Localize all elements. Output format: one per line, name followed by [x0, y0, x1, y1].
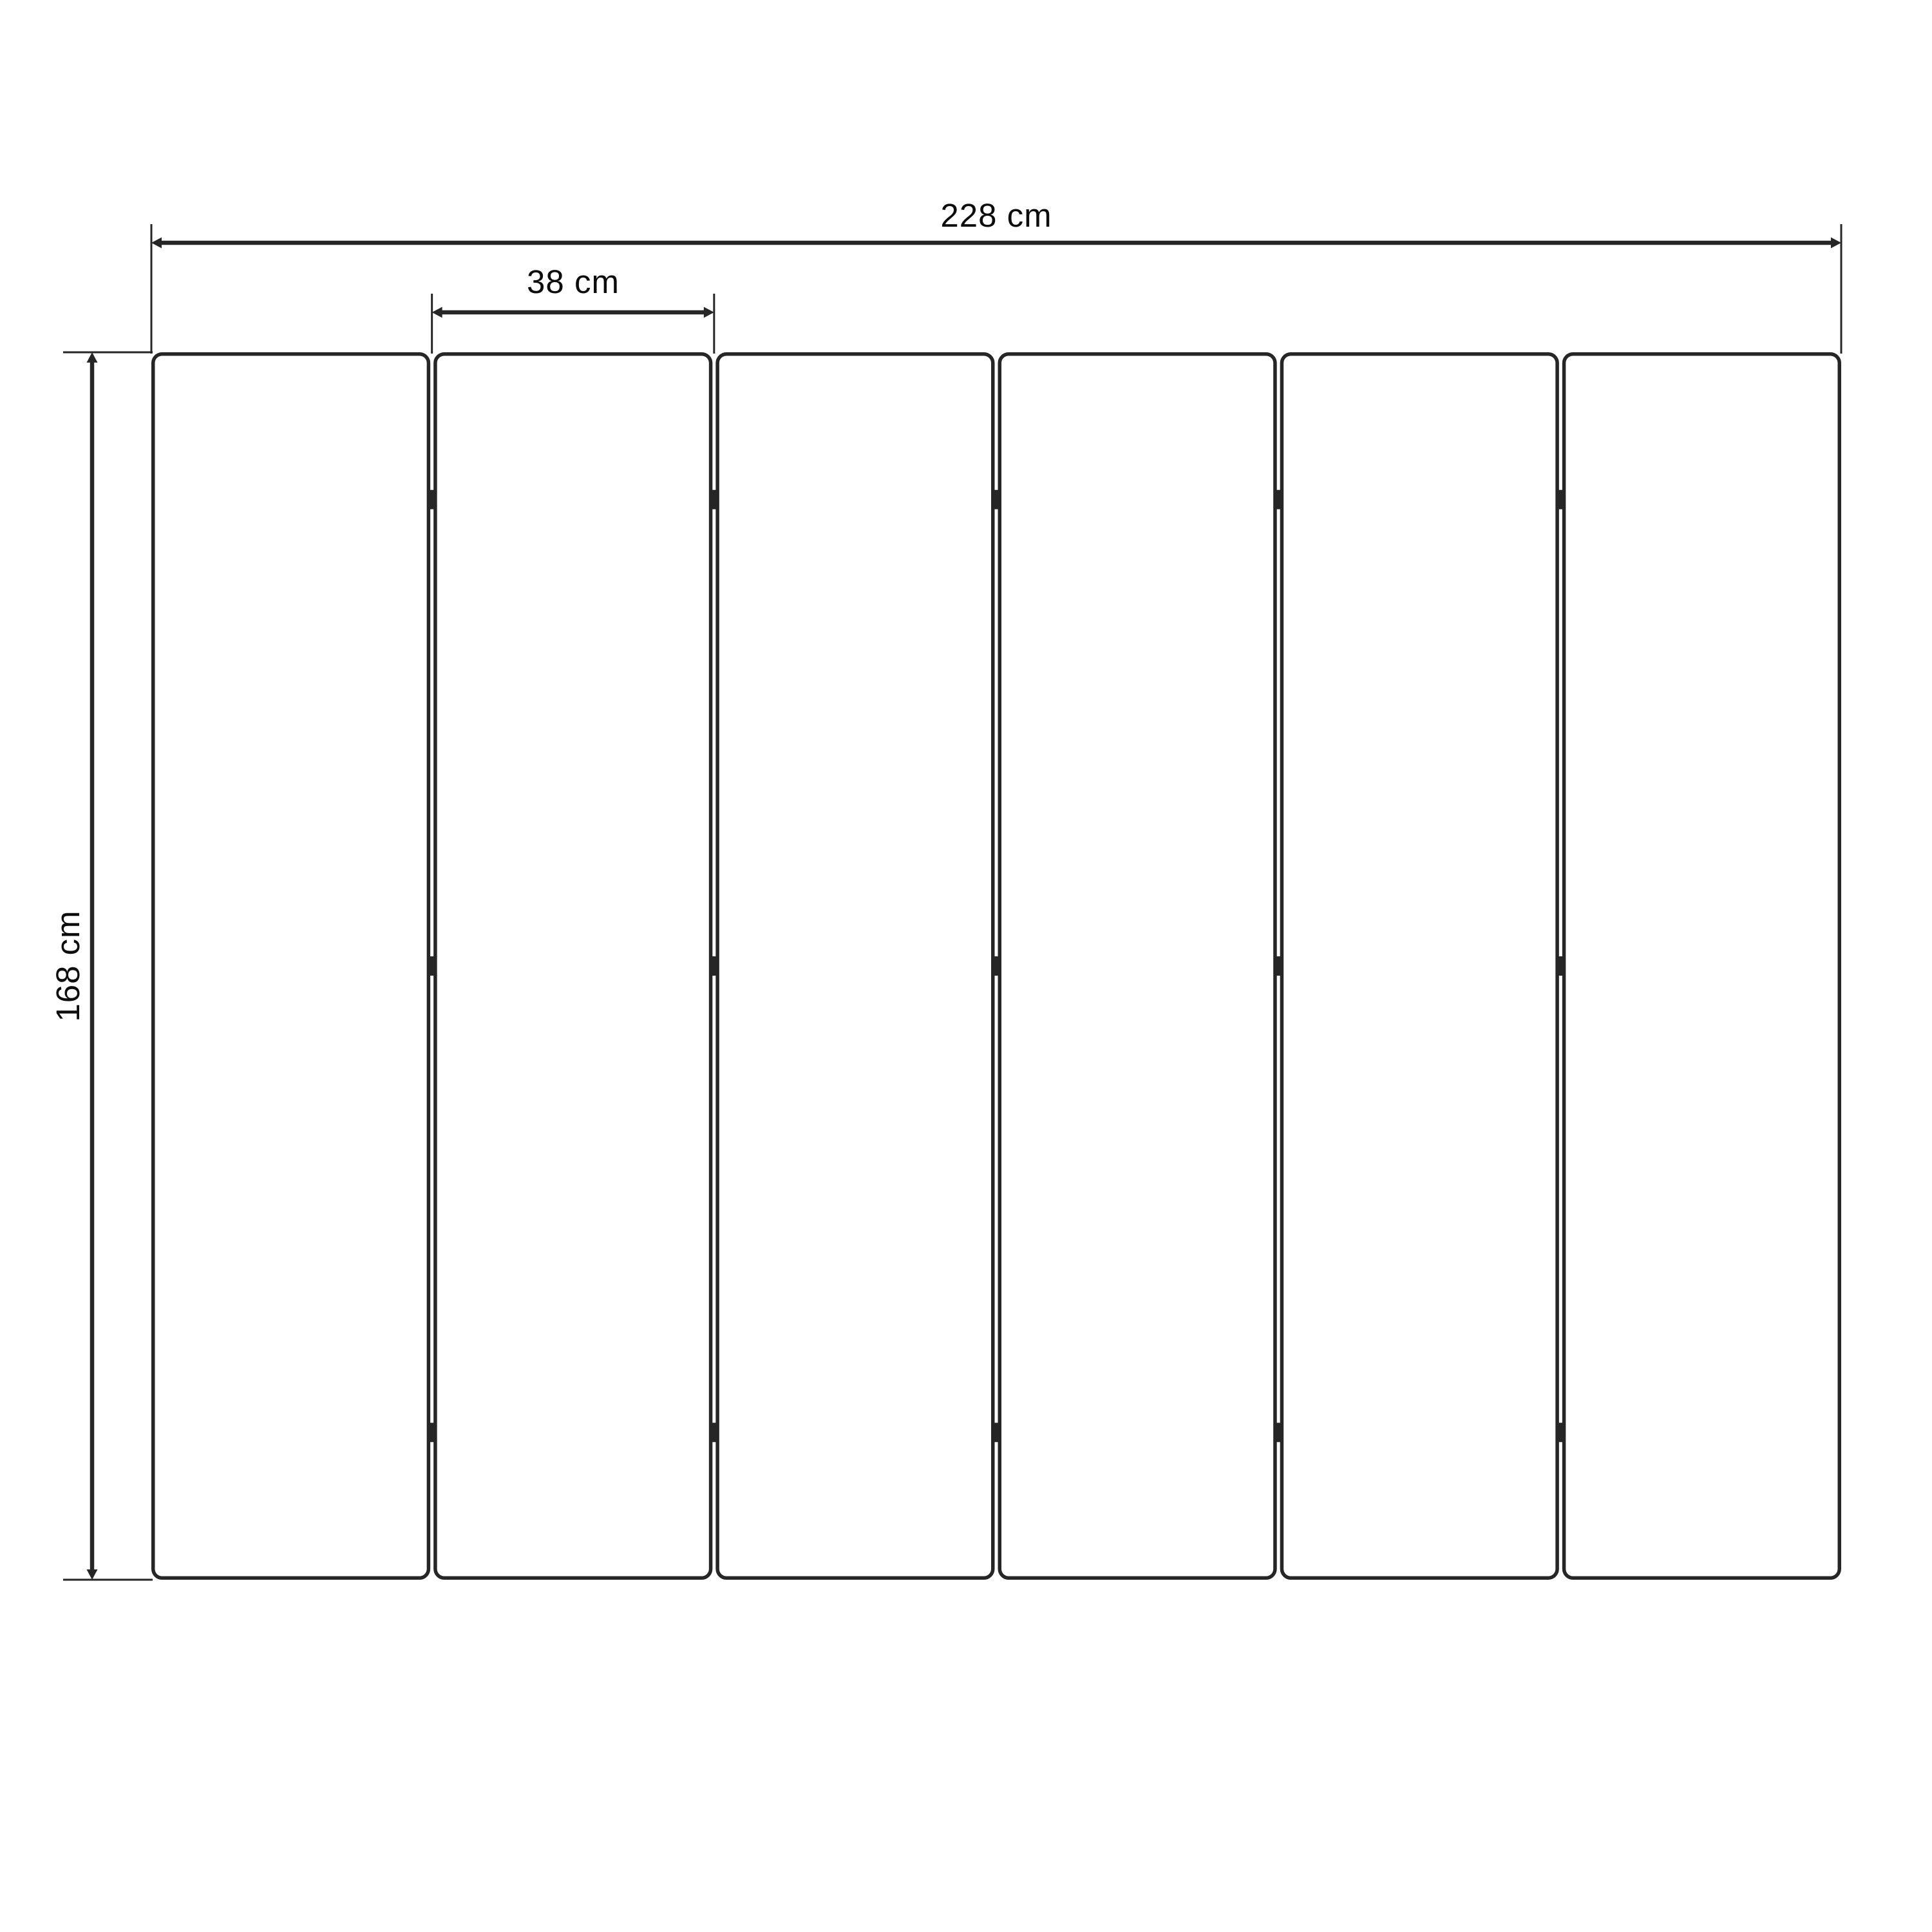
hinge-mark [710, 490, 718, 509]
hinge-mark [1557, 956, 1564, 976]
height-dimension-label: 168 cm [50, 910, 86, 1021]
hinge-mark [428, 1423, 436, 1442]
hinge-mark [1274, 1423, 1282, 1442]
panel-width-dimension-label: 38 cm [527, 263, 620, 300]
hinge-mark [992, 1423, 1000, 1442]
hinge-mark [710, 956, 718, 976]
folding-screen-diagram: 228 cm 38 cm 168 cm [0, 0, 1932, 1932]
hinge-mark [1557, 1423, 1564, 1442]
hinge-mark [710, 1423, 718, 1442]
panel-5 [1282, 354, 1557, 1578]
hinge-mark [992, 490, 1000, 509]
panel-4 [999, 354, 1275, 1578]
hinge-mark [1274, 490, 1282, 509]
hinge-mark [428, 490, 436, 509]
hinge-mark [428, 956, 436, 976]
panels-group [153, 354, 1840, 1578]
total-width-dimension [151, 224, 1841, 354]
panel-1 [153, 354, 429, 1578]
panel-3 [717, 354, 993, 1578]
hinge-mark [1274, 956, 1282, 976]
hinge-mark [1557, 490, 1564, 509]
panel-2 [435, 354, 711, 1578]
hinge-mark [992, 956, 1000, 976]
panel-6 [1564, 354, 1840, 1578]
total-width-dimension-label: 228 cm [940, 197, 1052, 234]
panel-width-dimension [432, 294, 714, 354]
